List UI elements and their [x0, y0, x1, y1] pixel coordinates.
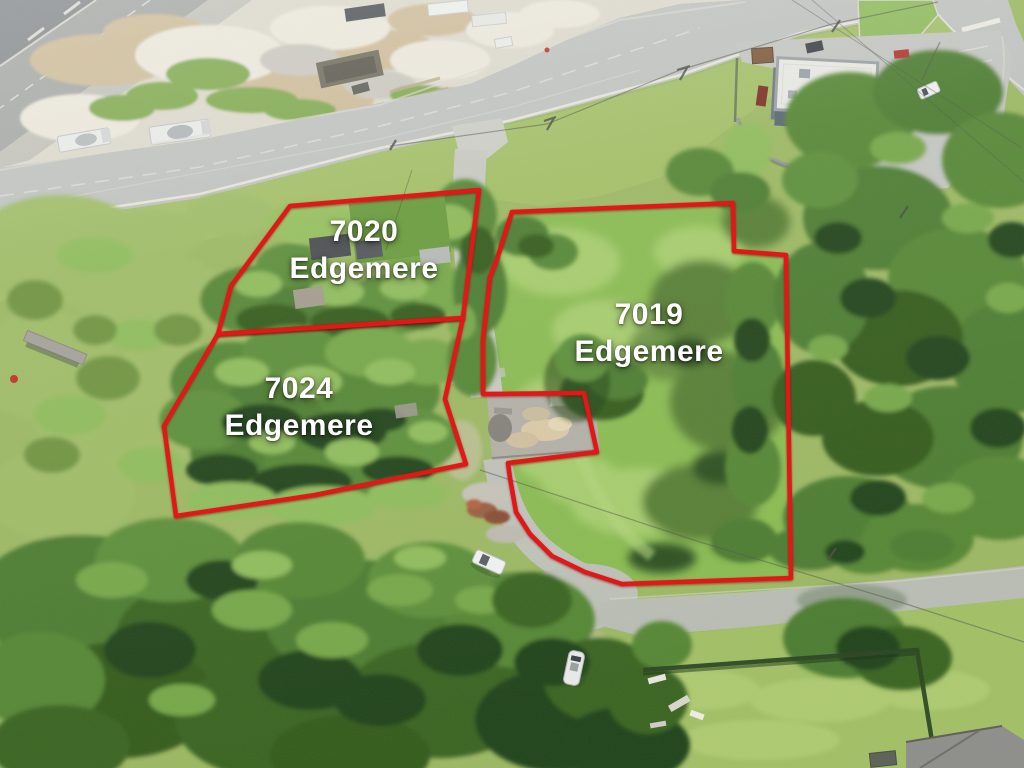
aerial-scene: [0, 0, 1024, 768]
photo-grain: [0, 0, 1024, 768]
aerial-listing-photo: 7020 Edgemere 7024 Edgemere 7019 Edgemer…: [0, 0, 1024, 768]
